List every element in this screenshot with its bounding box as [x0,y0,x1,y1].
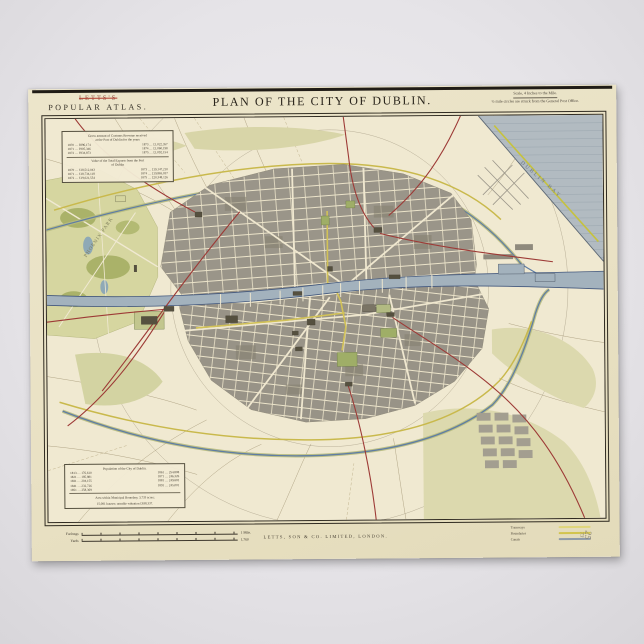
valuation-note: 15,081 houses; rateable valuation £638,3… [67,501,182,506]
merrion-square [381,328,397,337]
dublin-castle [307,319,315,325]
table-row: 1872 … £19,021,5541875 … £20,348,126 [65,175,171,180]
scalebar-yards: Yards 1,760 [55,537,267,543]
boundary-note: Area within Municipal Boundary, 3,733 ac… [67,495,182,500]
scalebar-line [82,538,238,542]
population-table: Population of the City of Dublin. 1813 …… [64,463,185,509]
publisher-imprint: LETTS, SON & CO. LIMITED, LONDON. [263,534,387,540]
scale-bars: Furlongs 1 Mile. Yards 1,760 [55,530,267,545]
map-sheet: LETTS'S POPULAR ATLAS. PLAN OF THE CITY … [28,85,620,562]
christ-church [292,331,298,335]
college-park [376,305,390,313]
customs-revenue-table: Gross amount of Customs Revenue received… [61,130,173,183]
royal-hospital [141,316,157,324]
page-title: PLAN OF THE CITY OF DUBLIN. [213,93,432,110]
map-frame-inner: PHOENIX PARK DUBLIN BAY Gross amount of … [44,114,606,523]
brewery [226,316,238,323]
tramways-swatch [559,526,591,528]
st-stephens-green [337,352,357,366]
sheet-footer: Furlongs 1 Mile. Yards 1,760 LETTS, SON … [45,523,607,559]
scalebar-line [82,531,238,535]
table-row: 1851 … 258,369 [67,487,182,492]
trinity-college [363,305,376,312]
key-row-tramways: Tramways [511,525,591,530]
amiens-st-station [374,227,382,232]
kingsbridge-station [164,306,174,311]
scale-note: Scale, 4 Inches to the Mile. ½ mile circ… [472,90,598,105]
st-patricks [295,347,302,351]
four-courts [293,291,302,295]
scalebar-furlongs: Furlongs 1 Mile. [55,530,267,536]
parnell-square [321,216,329,225]
circles-note-text: ½ mile circles are struck from the Gener… [491,98,579,104]
publisher-block: LETTS'S POPULAR ATLAS. [48,94,148,113]
table-divider [67,156,169,158]
map-frame: PHOENIX PARK DUBLIN BAY Gross amount of … [41,111,609,526]
general-post-office [328,266,333,271]
westland-row-station [386,313,394,317]
poster-background: LETTS'S POPULAR ATLAS. PLAN OF THE CITY … [0,0,644,644]
harcourt-st-station [345,382,352,386]
pencil-annotation: 25 73 [579,530,592,540]
custom-house [389,275,400,279]
mountjoy-square [346,201,355,208]
broadstone-station [195,212,202,217]
table-divider [69,493,180,495]
atlas-series-title: POPULAR ATLAS. [48,102,148,113]
table-row: 1872 … £934,8731875 … £1,092,154 [65,150,171,155]
